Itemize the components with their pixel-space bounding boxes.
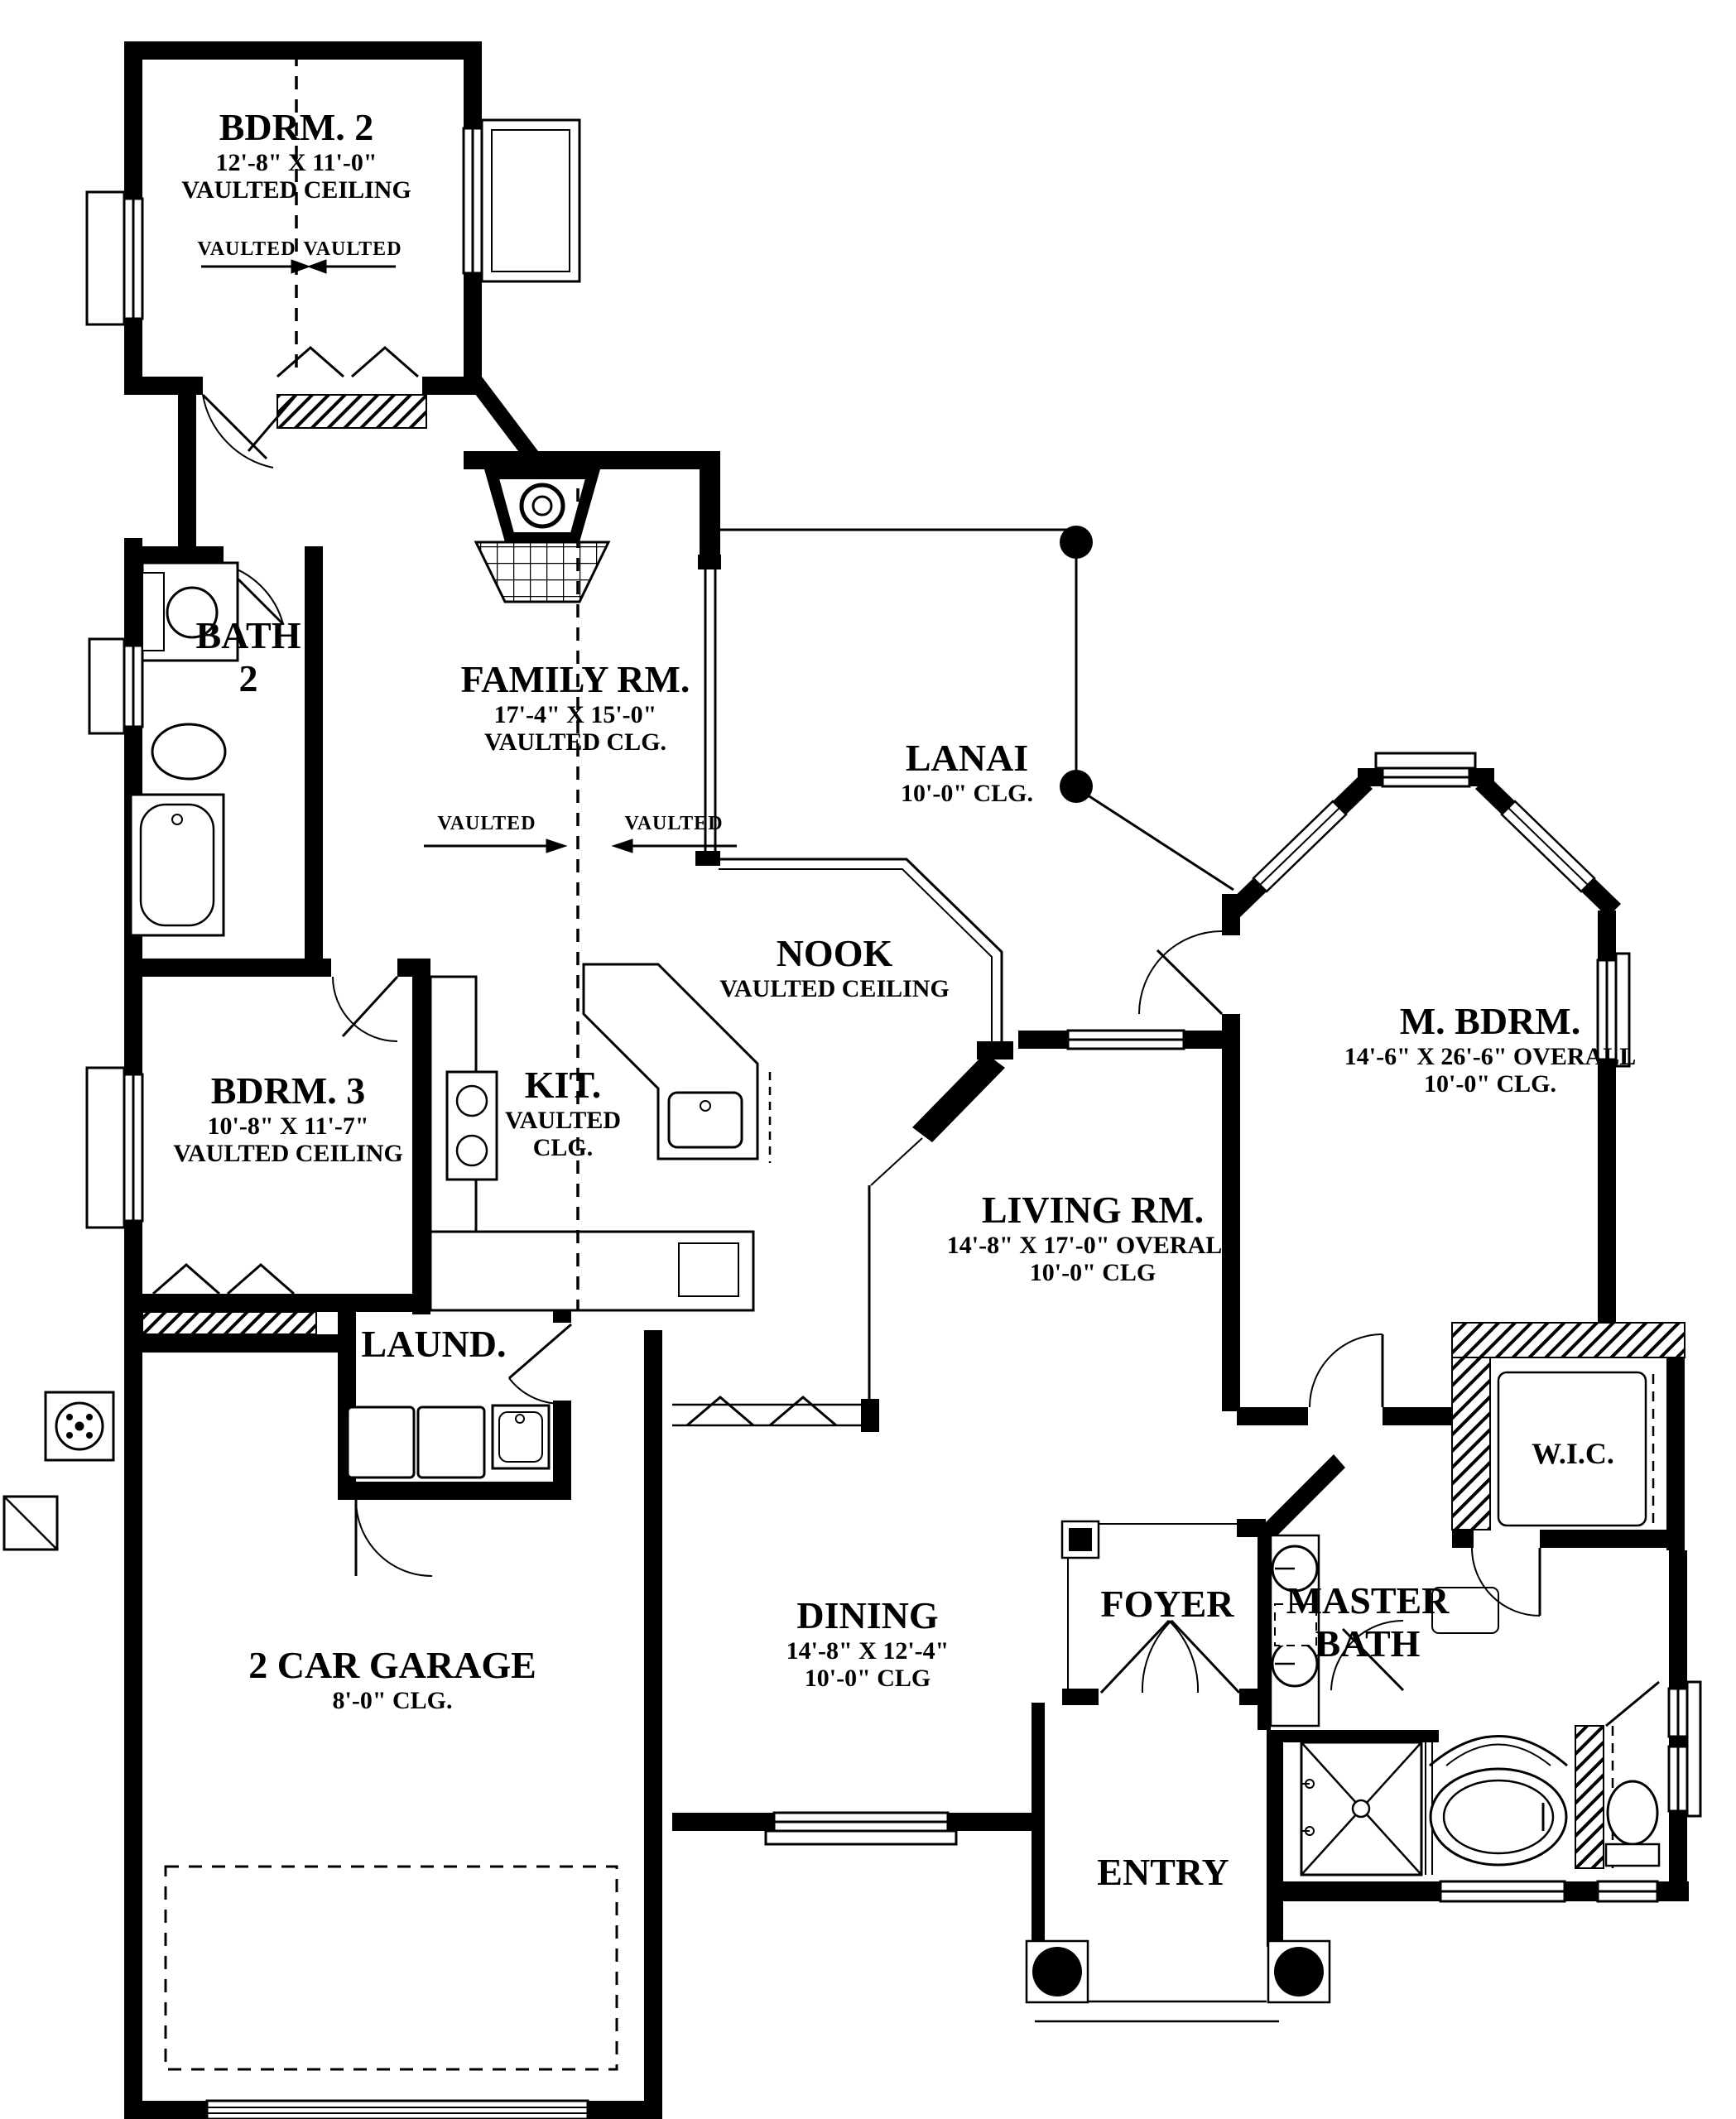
wic-left-wall-hatch — [1452, 1357, 1490, 1530]
wic-top-wall-hatch — [1452, 1323, 1685, 1357]
room-title: LAUND. — [361, 1323, 506, 1366]
floor-plan: BDRM. 2 12'-8" X 11'-0" VAULTED CEILING … — [0, 0, 1736, 2119]
room-label-entry: ENTRY — [1097, 1851, 1229, 1894]
lanai-column — [1060, 770, 1093, 803]
room-ceiling: 10'-0" CLG — [947, 1259, 1239, 1287]
arched-window — [1430, 1737, 1567, 1766]
room-title: KIT. — [505, 1064, 621, 1107]
room-title: LIVING RM. — [947, 1189, 1239, 1232]
room-title: ENTRY — [1097, 1851, 1229, 1894]
vaulted-note: VAULTED — [624, 813, 723, 835]
vaulted-note: VAULTED — [437, 813, 536, 835]
room-title: FAMILY RM. — [461, 658, 690, 701]
garage-dashed-area — [166, 1867, 617, 2069]
laundry-fixtures — [348, 1405, 549, 1478]
master-toilet-icon — [1608, 1781, 1657, 1844]
room-dims: 10'-8" X 11'-7" — [173, 1112, 403, 1141]
room-dims: 14'-8" X 17'-0" OVERALL — [947, 1232, 1239, 1260]
room-label-living: LIVING RM. 14'-8" X 17'-0" OVERALL 10'-0… — [947, 1189, 1239, 1287]
room-title: BATH — [196, 614, 301, 657]
room-ceiling: 10'-0" CLG. — [901, 780, 1033, 808]
room-title: 2 — [196, 657, 301, 700]
room-ceiling: CLG. — [505, 1134, 621, 1162]
outdoor-equipment — [4, 1392, 113, 1550]
room-label-master-bedroom: M. BDRM. 14'-6" X 26'-6" OVERALL 10'-0" … — [1344, 1000, 1637, 1098]
room-label-bdrm3: BDRM. 3 10'-8" X 11'-7" VAULTED CEILING — [173, 1069, 403, 1168]
master-bath-divider-hatch — [1575, 1726, 1604, 1868]
room-ceiling: VAULTED CEILING — [173, 1140, 403, 1168]
dryer-icon — [418, 1407, 484, 1478]
room-label-nook: NOOK VAULTED CEILING — [719, 932, 950, 1002]
dashed-lines — [166, 53, 617, 2069]
room-label-bdrm2: BDRM. 2 12'-8" X 11'-0" VAULTED CEILING — [181, 106, 411, 204]
room-label-dining: DINING 14'-8" X 12'-4" 10'-0" CLG — [786, 1594, 950, 1693]
room-title: FOYER — [1101, 1583, 1234, 1626]
room-title: 2 CAR GARAGE — [248, 1644, 536, 1687]
room-title: BDRM. 3 — [173, 1069, 403, 1112]
room-label-foyer: FOYER — [1101, 1583, 1234, 1626]
room-dims: 14'-6" X 26'-6" OVERALL — [1344, 1043, 1637, 1071]
room-label-garage: 2 CAR GARAGE 8'-0" CLG. — [248, 1644, 536, 1714]
fireplace-icon — [476, 469, 608, 602]
room-ceiling: 10'-0" CLG — [786, 1665, 950, 1693]
lanai-column — [1060, 526, 1093, 559]
room-ceiling: VAULTED CEILING — [719, 975, 950, 1003]
room-title: M. BDRM. — [1344, 1000, 1637, 1043]
bdrm3-closet-hatch — [142, 1312, 316, 1334]
room-title: BDRM. 2 — [181, 106, 411, 149]
room-label-laundry: LAUND. — [361, 1323, 506, 1366]
washer-icon — [348, 1407, 414, 1478]
room-label-bath2: BATH 2 — [196, 614, 301, 699]
room-dims: 17'-4" X 15'-0" — [461, 701, 690, 729]
bdrm2-closet-hatch — [277, 395, 426, 428]
room-ceiling: 10'-0" CLG. — [1344, 1070, 1637, 1098]
vaulted-note: VAULTED — [303, 238, 402, 261]
room-title: NOOK — [719, 932, 950, 975]
room-title: DINING — [786, 1594, 950, 1637]
room-dims: 12'-8" X 11'-0" — [181, 149, 411, 177]
room-title: W.I.C. — [1532, 1437, 1614, 1470]
vaulted-note: VAULTED — [197, 238, 296, 261]
room-label-family: FAMILY RM. 17'-4" X 15'-0" VAULTED CLG. — [461, 658, 690, 757]
room-title: LANAI — [901, 737, 1033, 780]
room-label-master-bath: MASTER BATH — [1286, 1579, 1450, 1665]
room-label-lanai: LANAI 10'-0" CLG. — [901, 737, 1033, 807]
sink-icon — [152, 724, 225, 779]
room-title: BATH — [1286, 1622, 1450, 1665]
room-ceiling: 8'-0" CLG. — [248, 1687, 536, 1715]
room-dims: 14'-8" X 12'-4" — [786, 1637, 950, 1665]
room-label-wic: W.I.C. — [1532, 1437, 1614, 1470]
room-ceiling: VAULTED — [505, 1107, 621, 1135]
room-label-kitchen: KIT. VAULTED CLG. — [505, 1064, 621, 1162]
room-ceiling: VAULTED CLG. — [461, 728, 690, 757]
room-title: MASTER — [1286, 1579, 1450, 1622]
room-ceiling: VAULTED CEILING — [181, 176, 411, 204]
